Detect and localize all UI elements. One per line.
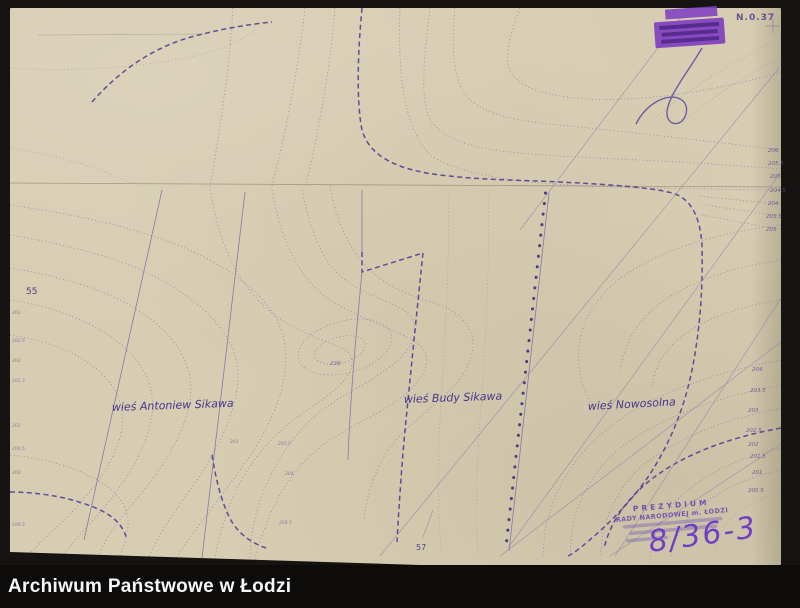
contour-line — [10, 148, 140, 186]
faint-line-top-left — [38, 34, 205, 35]
contour-label: 203.5 — [766, 214, 782, 220]
contour-label: 203 — [12, 310, 21, 316]
village-label-nowosolna: wieś Nowosolna — [587, 395, 676, 413]
contour-line — [680, 58, 781, 125]
heavy-contour-line — [358, 8, 702, 556]
contour-label: 204.5 — [770, 188, 786, 194]
archive-caption-bar: Archiwum Państwowe w Łodzi — [0, 565, 800, 608]
parcel-line — [202, 192, 245, 558]
contour-label: 200.5 — [748, 488, 764, 494]
stamp-strip — [665, 6, 718, 20]
dotted-boundary-markers — [506, 193, 546, 551]
village-label-antoniew-sikawa: wieś Antoniew Sikawa — [112, 397, 234, 414]
parcel-line — [84, 190, 162, 540]
contour-line — [250, 190, 415, 558]
contour-label: 202.5 — [12, 338, 25, 344]
contour-line — [10, 205, 286, 560]
contour-label: 203.5 — [750, 388, 766, 394]
contour-label: 203.5 — [278, 441, 291, 447]
map-drawing: 206 205.5 205 204.5 204 203.5 203 204 20… — [0, 0, 800, 608]
contour-line — [210, 186, 352, 560]
contour-label: 201 — [752, 470, 763, 476]
archive-caption: Archiwum Państwowe w Łodzi — [8, 576, 291, 597]
contour-label: 204 — [752, 367, 763, 373]
tick-line — [423, 510, 433, 537]
contour-label: 203 — [230, 439, 239, 445]
boundary-companion-line — [509, 193, 549, 551]
contour-label: 202.5 — [746, 428, 762, 434]
contour-line — [10, 335, 123, 560]
contour-label: 202 — [748, 442, 759, 448]
contour-lines-left — [10, 186, 489, 560]
contour-line — [210, 8, 233, 186]
ink-stamp-top — [636, 6, 725, 124]
zigzag-boundary — [362, 252, 423, 272]
contour-line — [10, 30, 256, 70]
contour-label: 201 — [12, 423, 21, 429]
parcel-line — [348, 272, 362, 460]
contour-label: 204.5 — [279, 520, 292, 526]
contour-line — [438, 190, 448, 556]
contour-line — [655, 38, 781, 118]
contour-label: 201.5 — [750, 454, 766, 460]
contour-lines-top — [10, 8, 781, 556]
parcel-number-55: 55 — [26, 287, 37, 297]
contour-line — [306, 8, 335, 186]
contour-elevation-labels: 206 205.5 205 204.5 204 203.5 203 204 20… — [12, 148, 786, 528]
contour-ellipse — [292, 309, 398, 384]
contour-line — [579, 225, 782, 405]
contour-label: 204 — [285, 471, 294, 477]
contour-line — [10, 455, 128, 560]
contour-line — [272, 8, 305, 186]
heavy-contour-line — [212, 455, 266, 548]
parcel-boundaries — [84, 8, 781, 558]
contour-label: 203 — [748, 408, 759, 414]
hill-elevation-label: 230 — [330, 361, 341, 367]
signature-flourish — [636, 48, 702, 124]
contour-label: 201.5 — [12, 378, 25, 384]
contour-line — [255, 190, 426, 560]
parcel-number-57: 57 — [416, 543, 426, 552]
contour-line — [652, 300, 781, 388]
contour-label: 206 — [768, 148, 779, 154]
contour-line — [453, 8, 781, 150]
heavy-contour-line — [10, 492, 127, 540]
contour-label: 204 — [768, 201, 779, 207]
village-label-budy-sikawa: wieś Budy Sikawa — [404, 390, 503, 406]
contour-label: 199.5 — [12, 522, 25, 528]
fold-line — [10, 183, 781, 187]
contour-line — [330, 186, 473, 520]
contour-label: 205.5 — [768, 161, 784, 167]
paper-edge-shadow — [10, 552, 420, 565]
contour-line — [620, 260, 781, 370]
contour-line — [10, 268, 191, 558]
contour-label: 202 — [12, 358, 21, 364]
contour-label: 200 — [12, 470, 21, 476]
diagonal-line — [380, 68, 779, 556]
contour-label: 205 — [770, 174, 781, 180]
sheet-number: N.0.37 — [736, 13, 775, 23]
contour-line — [477, 190, 489, 556]
contour-label: 200.5 — [12, 446, 25, 452]
contour-label: 203 — [766, 227, 777, 233]
diagonal-line — [508, 172, 781, 548]
